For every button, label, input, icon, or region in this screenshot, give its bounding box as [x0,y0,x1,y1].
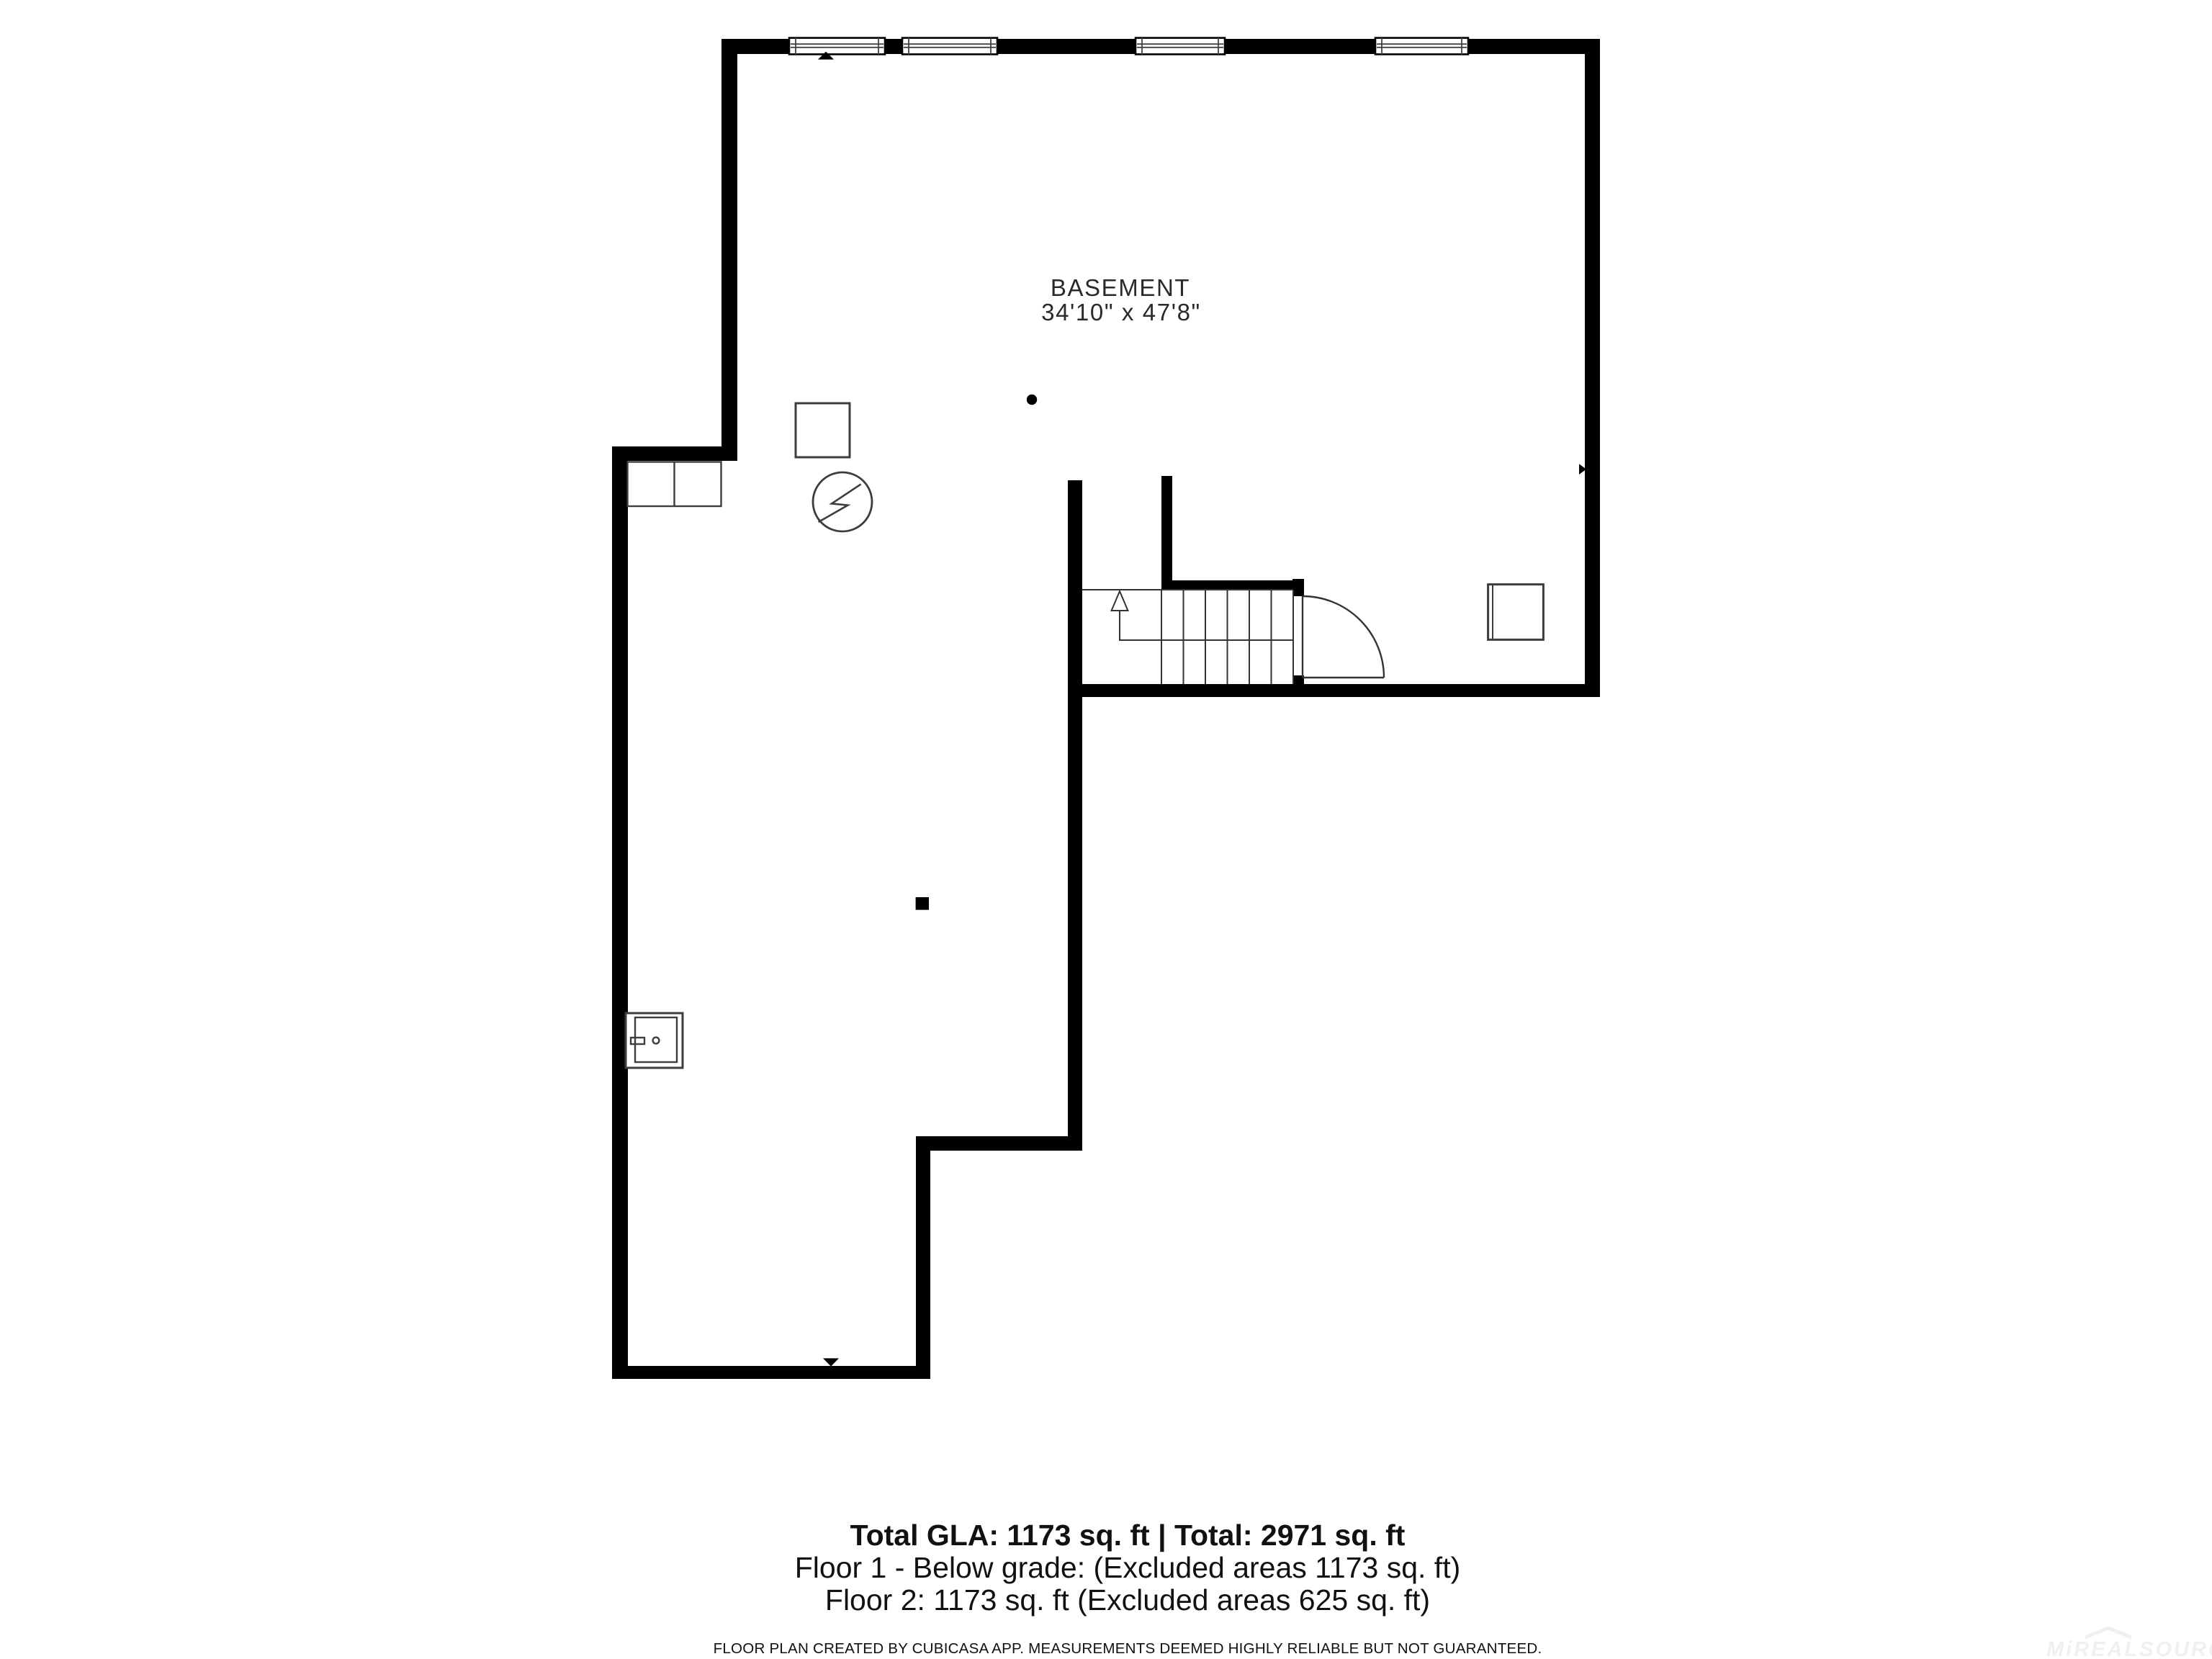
wall-extension-step-horizontal [916,1136,1082,1151]
window-icon [1136,38,1225,55]
wall-stair-vertical [1161,476,1172,590]
floor-plan-canvas: BASEMENT 34'10" x 47'8" Total GLA: 1173 … [0,0,2212,1659]
floor1-line: Floor 1 - Below grade: (Excluded areas 1… [795,1551,1460,1584]
wall-upper-left [721,39,737,461]
column-icon [1027,395,1037,405]
wall-extension-left [612,446,628,1379]
wall-markers [625,52,1586,1367]
room-label-group: BASEMENT 34'10" x 47'8" [1041,274,1201,325]
summary-block: Total GLA: 1173 sq. ft | Total: 2971 sq.… [714,1519,1542,1657]
wall-marker-icon [823,1358,839,1366]
wall-upper-left-step [612,446,737,461]
door-icon [1303,596,1384,678]
cabinet-icon [628,462,721,507]
watermark-group: MiREALSOURCE [2046,1628,2212,1659]
floor-plan-page: { "room": { "label": "BASEMENT", "dimens… [0,0,2212,1659]
utility-appliance-icon [626,1013,683,1068]
wall-extension-step-vertical [916,1136,930,1379]
watermark-text: MiREALSOURCE [2046,1638,2212,1659]
stair-up-arrow-icon [1112,591,1128,611]
furnace-icon [796,403,850,457]
wall-bottom-right-section [1068,684,1600,697]
total-gla-line: Total GLA: 1173 sq. ft | Total: 2971 sq.… [850,1519,1406,1552]
appliance-icon [1488,585,1544,640]
exterior-walls [612,39,1600,1379]
watermark-roof-icon [2085,1628,2131,1637]
wall-extension-right [1068,480,1082,1151]
door-jamb-top [1292,579,1304,596]
wall-extension-bottom [612,1366,930,1379]
floor2-line: Floor 2: 1173 sq. ft (Excluded areas 625… [825,1583,1430,1617]
stairs-icon [1082,590,1293,684]
wall-stair-horizontal [1161,580,1300,590]
room-dimensions: 34'10" x 47'8" [1041,299,1201,325]
fixtures [626,395,1543,1068]
disclaimer-text: FLOOR PLAN CREATED BY CUBICASA APP. MEAS… [714,1640,1542,1657]
window-icon [902,38,997,55]
window-icon [789,38,885,55]
wall-right [1585,39,1600,697]
post-icon [916,897,929,910]
electric-meter-icon [813,472,872,531]
room-name: BASEMENT [1051,274,1190,301]
window-icon [1375,38,1468,55]
stair-walk-line [1120,611,1293,640]
